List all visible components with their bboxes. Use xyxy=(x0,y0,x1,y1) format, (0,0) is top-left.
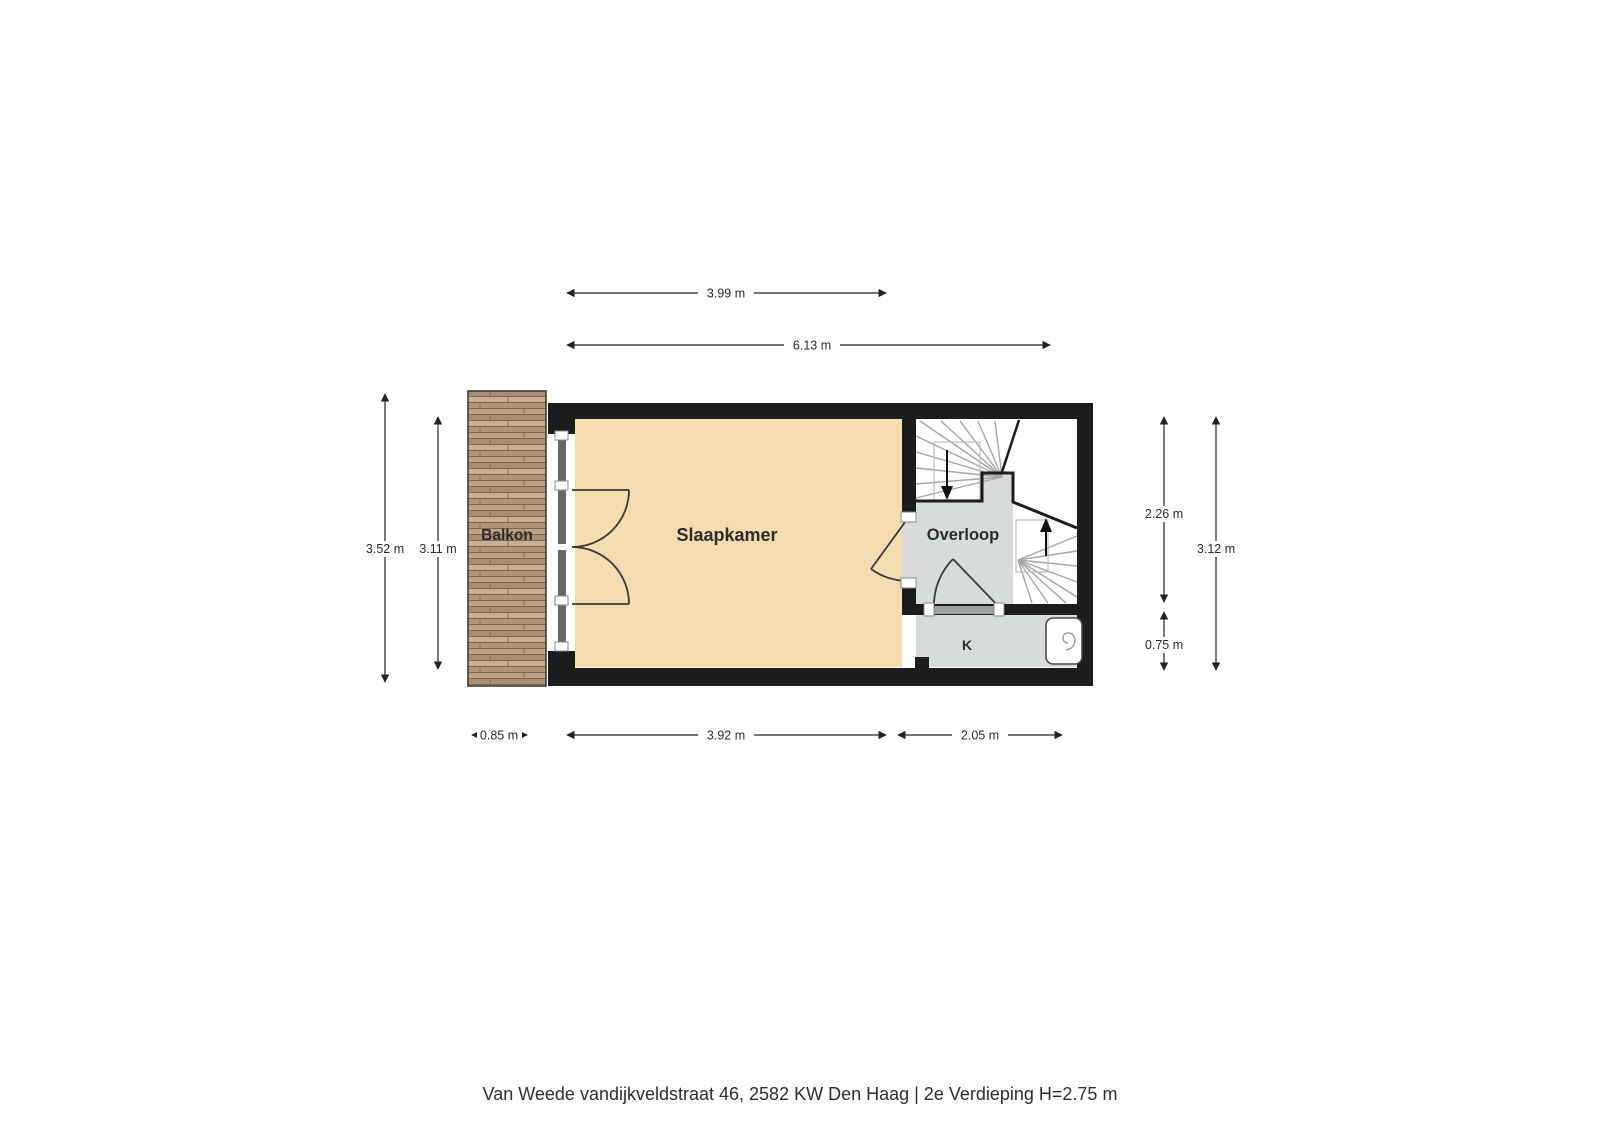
svg-text:0.85 m: 0.85 m xyxy=(480,729,518,743)
floorplan-canvas: Balkon Slaapkamer Overloop K 3.99 m 6.13… xyxy=(0,0,1600,1131)
overloop-label: Overloop xyxy=(927,526,999,544)
boiler-icon xyxy=(1046,618,1082,664)
slaapkamer-label: Slaapkamer xyxy=(676,525,777,545)
dim-right-total-height: 3.12 m xyxy=(1188,417,1244,670)
svg-text:2.26 m: 2.26 m xyxy=(1145,507,1183,521)
svg-text:3.52 m: 3.52 m xyxy=(366,542,404,556)
dim-bottom-hall-width: 2.05 m xyxy=(898,727,1062,743)
svg-text:6.13 m: 6.13 m xyxy=(793,339,831,353)
svg-text:3.92 m: 3.92 m xyxy=(707,729,745,743)
dim-bottom-balcony-width: 0.85 m xyxy=(472,727,527,743)
dim-top-bedroom-width: 3.99 m xyxy=(567,285,886,301)
dim-right-upper-height: 2.26 m xyxy=(1136,417,1192,602)
kast-label: K xyxy=(962,637,972,653)
dim-right-lower-height: 0.75 m xyxy=(1136,612,1192,670)
dim-top-total-width: 6.13 m xyxy=(567,337,1050,353)
dim-bottom-bedroom-width: 3.92 m xyxy=(567,727,886,743)
bedroom-door-opening-floor xyxy=(902,521,916,579)
dim-left-interior-height: 3.11 m xyxy=(410,417,466,669)
footer-caption: Van Weede vandijkveldstraat 46, 2582 KW … xyxy=(0,1084,1600,1105)
svg-text:0.75 m: 0.75 m xyxy=(1145,638,1183,652)
floorplan-page: Balkon Slaapkamer Overloop K 3.99 m 6.13… xyxy=(0,0,1600,1131)
svg-text:2.05 m: 2.05 m xyxy=(961,729,999,743)
svg-text:3.11 m: 3.11 m xyxy=(419,542,456,556)
dim-left-balcony-height: 3.52 m xyxy=(357,394,413,682)
balcony-window-wall xyxy=(548,431,575,651)
svg-text:3.99 m: 3.99 m xyxy=(707,287,745,301)
balkon-label: Balkon xyxy=(481,527,533,544)
svg-text:3.12 m: 3.12 m xyxy=(1197,542,1235,556)
